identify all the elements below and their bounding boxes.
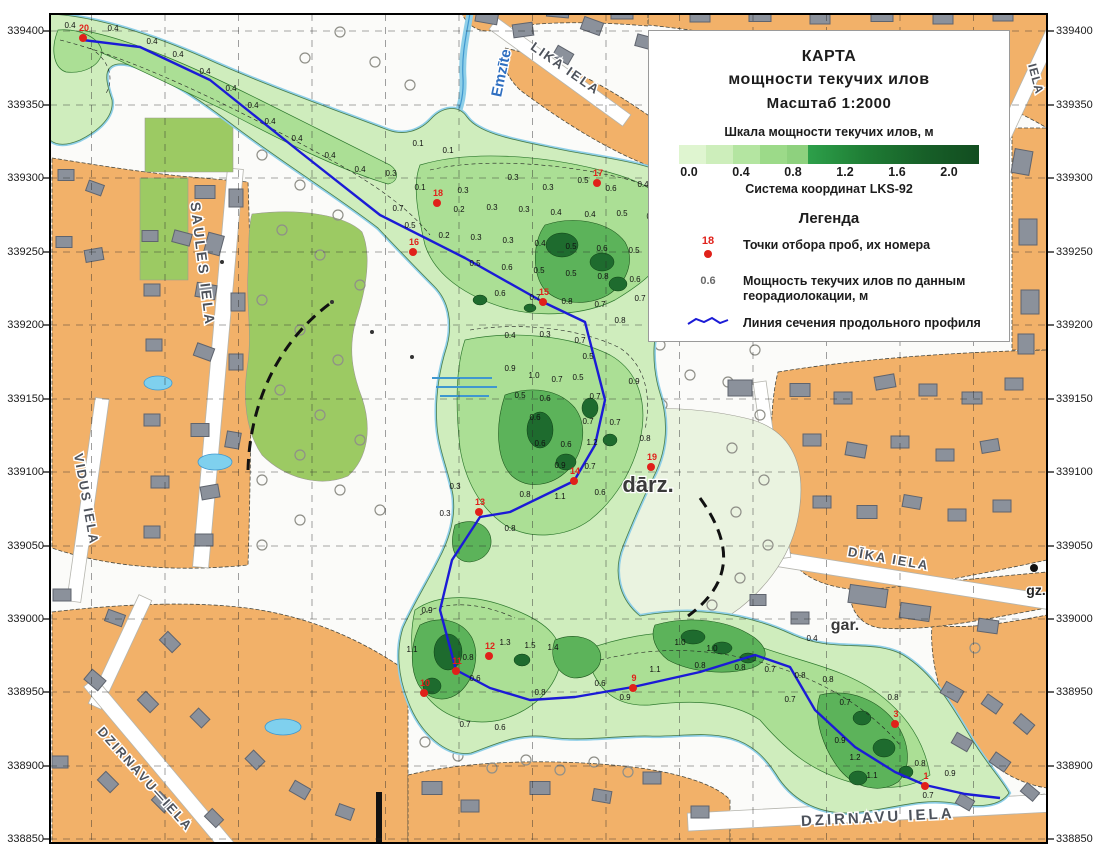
sample-point-number: 15 (539, 287, 549, 297)
depth-value-label: 0.6 (594, 679, 606, 688)
pole-mark (376, 792, 382, 843)
sample-point-number: 19 (647, 452, 657, 462)
ramp-tick-label: 2.0 (940, 165, 957, 179)
depth-value-label: 0.5 (565, 242, 577, 251)
depth-value-label: 0.3 (385, 169, 397, 178)
building (791, 612, 809, 624)
building (1021, 290, 1039, 314)
depth-value-label: 0.6 (605, 184, 617, 193)
ramp-tick-label: 0.0 (680, 165, 697, 179)
silt-contour-darkest (514, 654, 530, 666)
depth-value-label: 0.3 (449, 482, 461, 491)
depth-value-label: 0.1 (442, 146, 454, 155)
silt-thickness-color-ramp (679, 145, 979, 164)
depth-value-label: 0.8 (639, 434, 651, 443)
depth-value-label: 0.3 (507, 173, 519, 182)
depth-value-label: 0.5 (514, 391, 526, 400)
depth-value-label: 1.2 (849, 753, 861, 762)
tree-dot (410, 355, 414, 359)
sample-point-dot (433, 199, 441, 207)
depth-value-label: 0.7 (634, 294, 646, 303)
depth-value-label: 0.2 (438, 231, 450, 240)
landmark-dot (1030, 564, 1038, 572)
building (58, 170, 74, 181)
tree-dot (220, 260, 224, 264)
silt-contour-darkest (590, 253, 614, 271)
depth-value-label: 0.7 (594, 300, 606, 309)
building (1018, 334, 1034, 354)
building (845, 442, 867, 458)
depth-value-label: 0.4 (504, 331, 516, 340)
depth-value-label: 0.7 (584, 462, 596, 471)
sample-point-number: 20 (79, 23, 89, 33)
silt-contour-darkest (853, 711, 871, 725)
legend-item-sample-points-label: Точки отбора проб, их номера (743, 236, 930, 254)
ramp-tick-label: 1.6 (888, 165, 905, 179)
axis-label-left: 339050 (0, 540, 44, 552)
depth-value-label: 0.5 (577, 176, 589, 185)
axis-label-right: 339000 (1056, 613, 1093, 625)
depth-value-label: 1.1 (866, 771, 878, 780)
sample-point-number: 18 (433, 188, 443, 198)
depth-value-label: 0.4 (247, 101, 259, 110)
building (962, 392, 982, 404)
depth-value-label: 0.6 (560, 440, 572, 449)
building (813, 496, 831, 508)
depth-value-label: 0.7 (551, 375, 563, 384)
depth-value-label: 0.8 (734, 663, 746, 672)
place-label: gar. (831, 617, 859, 634)
building (142, 231, 158, 242)
building (530, 782, 550, 795)
depth-value-label: 0.1 (412, 139, 424, 148)
sample-point-dot (570, 477, 578, 485)
depth-value-label: 0.4 (172, 50, 184, 59)
depth-value-label: 0.4 (146, 37, 158, 46)
axis-label-left: 338850 (0, 833, 44, 845)
profile-line-icon (687, 314, 729, 333)
depth-value-label: 0.8 (534, 688, 546, 697)
map-scale: Масштаб 1:2000 (649, 93, 1009, 115)
depth-value-label: 0.9 (619, 693, 631, 702)
depth-value-label: 0.9 (944, 769, 956, 778)
depth-value-label: 0.9 (628, 377, 640, 386)
building (1005, 378, 1023, 390)
ramp-tick-label: 0.4 (732, 165, 749, 179)
sample-point-icon: 18 (687, 236, 729, 263)
tree-dot (370, 330, 374, 334)
sample-point-dot (593, 179, 601, 187)
axis-label-left: 339000 (0, 613, 44, 625)
depth-value-label: 0.7 (839, 698, 851, 707)
depth-value-label: 0.9 (554, 461, 566, 470)
depth-value-label: 0.8 (504, 524, 516, 533)
axis-label-left: 339100 (0, 466, 44, 478)
depth-value-label: 0.4 (550, 208, 562, 217)
building (144, 284, 160, 296)
sample-point-number: 14 (570, 466, 580, 476)
building (231, 293, 245, 311)
depth-value-label: 0.5 (533, 266, 545, 275)
building (919, 384, 937, 396)
depth-value-label: 0.8 (597, 272, 609, 281)
building (84, 248, 104, 263)
depth-value-label: 0.4 (354, 165, 366, 174)
sample-point-number: 12 (485, 641, 495, 651)
axis-label-right: 339050 (1056, 540, 1093, 552)
building (948, 509, 966, 521)
sample-point-dot (79, 34, 87, 42)
axis-label-right: 339200 (1056, 319, 1093, 331)
building (977, 618, 999, 634)
sample-point-dot (452, 667, 460, 675)
depth-value-label: 0.8 (694, 661, 706, 670)
depth-value-label: 0.3 (542, 183, 554, 192)
building (592, 789, 612, 804)
building (151, 476, 169, 488)
depth-value-label: 0.4 (264, 117, 276, 126)
building (993, 500, 1011, 512)
legend-item-depth-values: 0.6 Мощность текучих илов по данным геор… (687, 272, 995, 305)
depth-value-label: 0.8 (822, 675, 834, 684)
building (546, 2, 569, 18)
building (512, 22, 534, 38)
depth-value-label: 1.4 (547, 643, 559, 652)
sample-point-number: 16 (409, 237, 419, 247)
depth-value-label: 0.6 (539, 394, 551, 403)
depth-value-label: 0.8 (887, 693, 899, 702)
sample-point-number: 1 (923, 771, 928, 781)
axis-label-right: 339400 (1056, 25, 1093, 37)
depth-value-label: 0.4 (806, 634, 818, 643)
legend-panel: КАРТА мощности текучих илов Масштаб 1:20… (648, 30, 1010, 342)
axis-label-right: 338950 (1056, 686, 1093, 698)
axis-label-right: 338900 (1056, 760, 1093, 772)
silt-contour-darkest (609, 277, 627, 291)
depth-value-label: 0.5 (565, 269, 577, 278)
depth-value-label: 0.3 (502, 236, 514, 245)
depth-value-label: 0.5 (469, 259, 481, 268)
legend-item-profile-line-label: Линия сечения продольного профиля (743, 314, 981, 332)
depth-value-label: 0.4 (324, 151, 336, 160)
sample-point-dot (539, 298, 547, 306)
depth-value-label: 0.6 (629, 275, 641, 284)
depth-value-label: 0.4 (534, 239, 546, 248)
depth-value-label: 0.8 (462, 653, 474, 662)
depth-value-label: 0.4 (64, 21, 76, 30)
depth-value-label: 0.7 (392, 204, 404, 213)
silt-contour-darkest (473, 295, 487, 305)
ramp-tick-label: 0.8 (784, 165, 801, 179)
depth-value-label: 0.4 (584, 210, 596, 219)
silt-contour-darkest (524, 304, 536, 312)
building (229, 189, 243, 207)
depth-value-label: 0.9 (421, 606, 433, 615)
pond (144, 376, 172, 390)
depth-value-label: 0.6 (529, 413, 541, 422)
building (790, 384, 810, 397)
building (902, 495, 922, 510)
building (195, 186, 215, 199)
sample-point-number: 17 (593, 168, 603, 178)
axis-label-left: 338900 (0, 760, 44, 772)
map-title: КАРТА мощности текучих илов Масштаб 1:20… (649, 45, 1009, 115)
depth-value-label: 0.7 (459, 720, 471, 729)
silt-contour-darkest (603, 434, 617, 446)
depth-value-icon: 0.6 (687, 272, 729, 289)
depth-value-label: 1.2 (586, 438, 598, 447)
depth-value-label: 0.8 (519, 490, 531, 499)
depth-value-label: 1.1 (649, 665, 661, 674)
legend-item-depth-values-label: Мощность текучих илов по данным георадио… (743, 272, 995, 305)
scale-caption: Шкала мощности текучих илов, м (649, 125, 1009, 139)
depth-value-label: 0.5 (582, 352, 594, 361)
depth-value-label: 0.7 (609, 418, 621, 427)
building (1011, 149, 1033, 176)
sample-point-dot (475, 508, 483, 516)
building (200, 484, 220, 500)
silt-contour-darkest (582, 398, 598, 418)
sample-point-dot (921, 782, 929, 790)
depth-value-label: 0.3 (539, 330, 551, 339)
map-title-line2: мощности текучих илов (649, 68, 1009, 91)
depth-value-label: 0.7 (764, 665, 776, 674)
depth-value-label: 0.3 (439, 509, 451, 518)
building (936, 449, 954, 461)
building (461, 800, 479, 812)
axis-label-left: 339150 (0, 393, 44, 405)
depth-value-label: 0.2 (453, 205, 465, 214)
depth-value-label: 0.7 (922, 791, 934, 800)
depth-value-label: 0.6 (469, 674, 481, 683)
depth-value-label: 0.8 (794, 671, 806, 680)
legend-item-profile-line: Линия сечения продольного профиля (687, 314, 995, 333)
ramp-tick-label: 1.2 (836, 165, 853, 179)
building (857, 506, 877, 519)
axis-label-left: 339350 (0, 99, 44, 111)
sample-point-number: 13 (475, 497, 485, 507)
sample-point-dot (420, 689, 428, 697)
depth-value-label: 1.1 (406, 645, 418, 654)
sample-point-number: 9 (631, 673, 636, 683)
building (803, 434, 821, 446)
building (980, 439, 1000, 454)
depth-value-label: 0.9 (834, 736, 846, 745)
silt-thickness-map: 0.40.40.40.40.40.40.40.40.40.40.40.10.10… (0, 0, 1100, 849)
depth-value-label: 0.5 (616, 209, 628, 218)
depth-value-label: 1.0 (706, 644, 718, 653)
pond (198, 454, 232, 470)
axis-label-right: 339250 (1056, 246, 1093, 258)
depth-value-label: 0.6 (494, 723, 506, 732)
sample-point-dot (409, 248, 417, 256)
building (229, 354, 243, 370)
sample-point-dot (629, 684, 637, 692)
depth-value-label: 1.3 (499, 638, 511, 647)
depth-value-label: 0.6 (501, 263, 513, 272)
building (53, 589, 71, 601)
depth-value-label: 0.5 (572, 373, 584, 382)
depth-value-label: 1.0 (528, 371, 540, 380)
depth-value-label: 0.4 (225, 84, 237, 93)
building (422, 782, 442, 795)
silt-contour-darkest (849, 771, 867, 785)
building (728, 380, 752, 396)
legend-item-sample-points: 18 Точки отбора проб, их номера (687, 236, 995, 263)
sample-point-dot (891, 720, 899, 728)
building (195, 534, 213, 546)
axis-label-right: 338850 (1056, 833, 1093, 845)
depth-value-label: 0.7 (784, 695, 796, 704)
axis-label-left: 339250 (0, 246, 44, 258)
depth-value-label: 1.1 (554, 492, 566, 501)
depth-value-label: 0.4 (199, 67, 211, 76)
sample-point-dot (647, 463, 655, 471)
depth-value-label: 0.6 (494, 289, 506, 298)
sample-point-dot (485, 652, 493, 660)
coordinate-system-label: Система координат LKS-92 (649, 182, 1009, 196)
depth-value-label: 0.8 (561, 297, 573, 306)
axis-label-left: 339200 (0, 319, 44, 331)
building (144, 414, 160, 426)
depth-value-label: 0.5 (404, 221, 416, 230)
sample-point-number: 3 (893, 709, 898, 719)
building (834, 392, 852, 404)
legend-title: Легенда (649, 210, 1009, 227)
sample-point-number: 11 (452, 656, 462, 666)
depth-value-label: 0.6 (534, 439, 546, 448)
depth-value-label: 0.4 (107, 24, 119, 33)
building (691, 806, 709, 818)
depth-value-label: 0.7 (582, 417, 594, 426)
depth-value-label: 0.8 (914, 759, 926, 768)
pond (265, 719, 301, 735)
silt-contour-darkest (873, 739, 895, 757)
building (144, 526, 160, 538)
sample-point-number: 10 (420, 678, 430, 688)
vegetation-patch (145, 118, 233, 172)
depth-value-label: 0.7 (574, 336, 586, 345)
depth-value-label: 0.4 (291, 134, 303, 143)
depth-value-label: 0.6 (596, 244, 608, 253)
vegetation-patch (140, 178, 188, 280)
depth-value-label: 0.3 (457, 186, 469, 195)
depth-value-label: 0.6 (594, 488, 606, 497)
depth-value-label: 1.0 (674, 638, 686, 647)
depth-value-label: 0.1 (414, 183, 426, 192)
depth-value-label: 1.5 (524, 641, 536, 650)
depth-value-label: 0.9 (504, 364, 516, 373)
axis-label-right: 339150 (1056, 393, 1093, 405)
axis-label-right: 339300 (1056, 172, 1093, 184)
building (750, 595, 766, 606)
depth-value-label: 0.3 (486, 203, 498, 212)
depth-value-label: 0.8 (614, 316, 626, 325)
place-label: gz. (1026, 582, 1045, 598)
depth-value-label: 0.3 (470, 233, 482, 242)
axis-label-right: 339350 (1056, 99, 1093, 111)
axis-label-left: 339300 (0, 172, 44, 184)
depth-value-label: 0.3 (518, 205, 530, 214)
map-title-line1: КАРТА (649, 45, 1009, 68)
building (643, 772, 661, 784)
depth-value-label: 0.5 (628, 246, 640, 255)
building (690, 10, 710, 22)
ramp-tick-labels: 0.00.40.81.21.62.0 (679, 165, 979, 180)
building (1019, 219, 1037, 245)
axis-label-left: 338950 (0, 686, 44, 698)
depth-value-label: 0.7 (589, 392, 601, 401)
tree-dot (330, 300, 334, 304)
building (611, 5, 633, 19)
building (874, 374, 896, 390)
place-label: dārz. (622, 472, 673, 497)
building (56, 237, 72, 248)
axis-label-right: 339100 (1056, 466, 1093, 478)
building (191, 424, 209, 437)
axis-label-left: 339400 (0, 25, 44, 37)
building (146, 339, 162, 351)
